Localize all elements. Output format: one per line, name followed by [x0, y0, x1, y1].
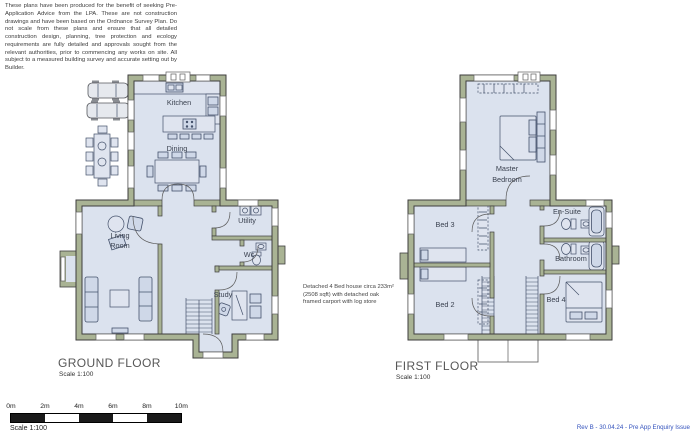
- room-label-kitchen: Kitchen: [167, 98, 191, 107]
- first-floor-scale: Scale 1:100: [396, 374, 430, 381]
- room-label-bed2: Bed 2: [435, 300, 454, 309]
- car-icon: [88, 81, 128, 101]
- room-label-bed3: Bed 3: [435, 220, 454, 229]
- room-label-study: Study: [214, 290, 233, 299]
- revision-note: Rev B - 30.04.24 - Pre App Enquiry Issue: [577, 424, 690, 431]
- ground-floor-title: GROUND FLOOR: [58, 356, 161, 370]
- room-label-living-1: Living: [110, 231, 129, 240]
- building-description: Detached 4 Bed house circa 233m² (2508 s…: [303, 284, 395, 307]
- room-label-ensuite: En-Suite: [553, 207, 581, 216]
- scale-bar: 0m 2m 4m 6m 8m 10m Scale 1:100: [10, 403, 182, 432]
- outdoor-table-icon: [86, 126, 118, 186]
- scale-tick: 2m: [40, 403, 49, 410]
- scale-tick: 4m: [74, 403, 83, 410]
- scale-bar-ruler: [10, 413, 182, 423]
- room-label-living-2: Room: [110, 241, 129, 250]
- room-label-master-2: Bedroom: [492, 175, 522, 184]
- car-icon: [87, 101, 129, 121]
- scale-bar-ticks: 0m 2m 4m 6m 8m 10m: [10, 403, 182, 413]
- scale-tick: 8m: [142, 403, 151, 410]
- room-label-bed4: Bed 4: [546, 295, 565, 304]
- ground-floor-scale: Scale 1:100: [59, 371, 93, 378]
- bed4-furniture: [566, 282, 602, 322]
- floor-plans-drawing: Kitchen Dining Living Room Utility Wc St…: [0, 0, 700, 441]
- scale-bar-label: Scale 1:100: [10, 425, 182, 432]
- room-label-utility: Utility: [238, 216, 256, 225]
- scale-tick: 6m: [108, 403, 117, 410]
- first-floor-title: FIRST FLOOR: [395, 359, 479, 373]
- room-label-bathroom: Bathroom: [555, 254, 587, 263]
- room-label-dining: Dining: [167, 144, 188, 153]
- chimney: [518, 72, 540, 82]
- room-label-master-1: Master: [496, 164, 519, 173]
- room-label-wc: Wc: [244, 250, 255, 259]
- floor-plan-sheet: These plans have been produced for the b…: [0, 0, 700, 441]
- ground-floor-plan: Kitchen Dining Living Room Utility Wc St…: [60, 72, 285, 358]
- chimney: [166, 72, 190, 82]
- scale-tick: 0m: [6, 403, 15, 410]
- first-floor-plan: Master Bedroom Bed 3 Bed 2 En-Suite Bath…: [400, 72, 619, 362]
- scale-tick: 10m: [175, 403, 188, 410]
